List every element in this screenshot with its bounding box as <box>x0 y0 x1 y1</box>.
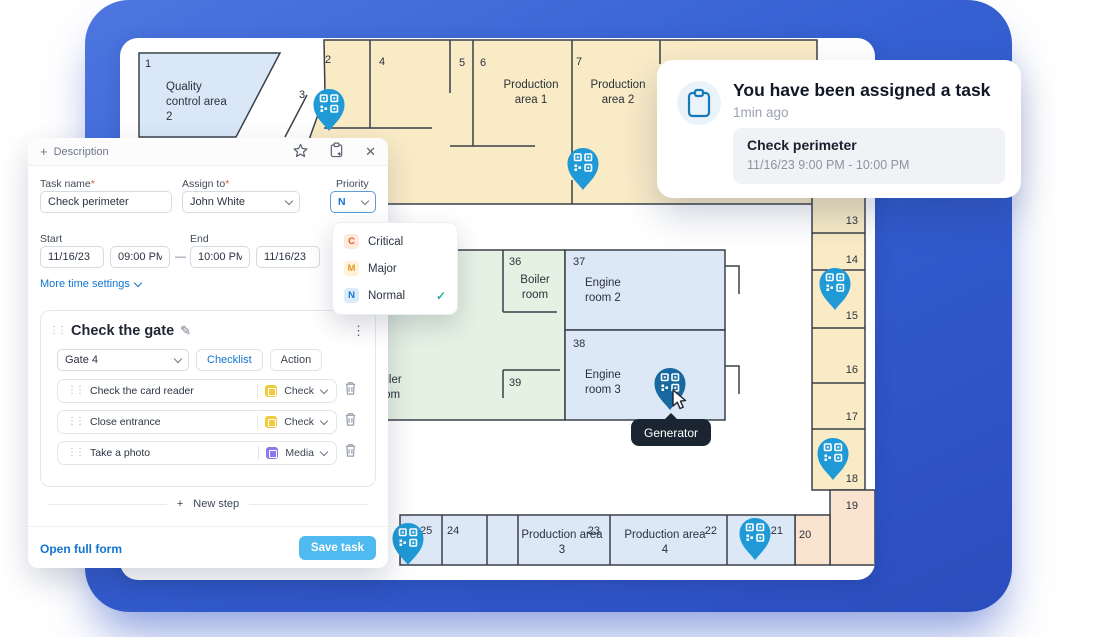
map-pin-qr-production-2[interactable] <box>565 146 601 192</box>
checklist-item-row: ⋮⋮ Take a photo Media <box>57 441 367 465</box>
start-label: Start <box>40 233 62 245</box>
room-number-37: 37 <box>573 256 585 268</box>
plus-icon: + <box>177 498 183 510</box>
map-tooltip-generator: Generator <box>631 419 711 446</box>
task-notification-toast[interactable]: You have been assigned a task 1min ago C… <box>657 60 1021 198</box>
clipboard-template-icon[interactable] <box>329 142 344 161</box>
map-pin-qr-room-15[interactable] <box>817 266 853 312</box>
checklist-item[interactable]: ⋮⋮ Check the card reader Check <box>57 379 337 403</box>
room-number-5: 5 <box>459 57 465 69</box>
more-time-settings-link[interactable]: More time settings <box>40 278 141 290</box>
drag-handle-icon[interactable]: ⋮⋮ <box>49 326 65 336</box>
form-header: + Description ✕ <box>28 138 388 166</box>
notification-task-name: Check perimeter <box>747 137 991 153</box>
step-title: Check the gate <box>71 323 174 339</box>
room-number-4: 4 <box>379 56 385 68</box>
edit-pencil-icon[interactable]: ✎ <box>180 323 191 339</box>
room-number-38: 38 <box>573 338 585 350</box>
assign-to-label: Assign to* <box>182 178 229 190</box>
chevron-down-icon <box>361 196 369 204</box>
room-number-13: 13 <box>832 215 858 227</box>
media-type-icon <box>266 447 278 459</box>
room-number-1: 1 <box>145 58 151 70</box>
room-number-16: 16 <box>832 364 858 376</box>
task-form-panel: + Description ✕ Task name* Assign to* Jo… <box>28 138 388 568</box>
start-time-input[interactable] <box>110 246 170 268</box>
checklist-item[interactable]: ⋮⋮ Take a photo Media <box>57 441 337 465</box>
chevron-down-icon[interactable] <box>320 416 328 424</box>
map-pin-qr-room-25[interactable] <box>390 521 426 567</box>
room-name-boiler: Boiler room <box>509 273 561 303</box>
drag-handle-icon[interactable]: ⋮⋮ <box>67 386 83 396</box>
priority-dropdown-menu: C Critical M Major N Normal ✓ <box>332 222 458 315</box>
map-pin-qr-room-21[interactable] <box>737 516 773 562</box>
assign-to-select[interactable]: John White <box>182 191 300 213</box>
chevron-down-icon[interactable] <box>320 447 328 455</box>
save-task-button[interactable]: Save task <box>299 536 376 560</box>
chevron-down-icon <box>134 278 142 286</box>
drag-handle-icon[interactable]: ⋮⋮ <box>67 417 83 427</box>
close-icon[interactable]: ✕ <box>365 144 376 160</box>
priority-label: Priority <box>336 178 369 190</box>
location-select[interactable]: Gate 4 <box>57 349 189 371</box>
notification-time-ago: 1min ago <box>733 105 789 120</box>
new-step-button[interactable]: +New step <box>48 498 368 510</box>
chevron-down-icon <box>174 354 182 362</box>
page: { "theme": { "frame_blue": "#3560d2", "p… <box>0 0 1098 637</box>
room-name-engine-2: Engine room 2 <box>585 276 640 306</box>
trash-icon[interactable] <box>344 381 357 401</box>
room-number-6: 6 <box>480 57 486 69</box>
trash-icon[interactable] <box>344 412 357 432</box>
end-date-input[interactable] <box>256 246 320 268</box>
end-time-input[interactable] <box>190 246 250 268</box>
description-label[interactable]: Description <box>54 146 109 158</box>
room-number-24: 24 <box>447 525 459 537</box>
notification-title: You have been assigned a task <box>733 80 990 101</box>
chevron-down-icon <box>285 196 293 204</box>
notification-task-time: 11/16/23 9:00 PM - 10:00 PM <box>747 158 991 172</box>
kebab-menu-icon[interactable]: ⋮ <box>352 323 365 339</box>
plus-icon[interactable]: + <box>40 144 48 159</box>
action-button[interactable]: Action <box>270 349 323 371</box>
drag-handle-icon[interactable]: ⋮⋮ <box>67 448 83 458</box>
priority-badge-normal: N <box>344 288 359 303</box>
trash-icon[interactable] <box>344 443 357 463</box>
start-date-input[interactable] <box>40 246 104 268</box>
task-name-label: Task name* <box>40 178 95 190</box>
end-label: End <box>190 233 209 245</box>
checklist-item[interactable]: ⋮⋮ Close entrance Check <box>57 410 337 434</box>
priority-select[interactable]: N <box>330 191 376 213</box>
map-pin-qr-room-3[interactable] <box>311 87 347 133</box>
room-name-production-2: Production area 2 <box>578 78 658 108</box>
priority-badge-critical: C <box>344 234 359 249</box>
room-number-17: 17 <box>832 411 858 423</box>
priority-badge-major: M <box>344 261 359 276</box>
room-number-3: 3 <box>299 89 305 101</box>
room-number-7: 7 <box>576 56 582 68</box>
room-name-engine-3: Engine room 3 <box>585 368 640 398</box>
priority-option-critical[interactable]: C Critical <box>333 228 457 255</box>
checklist-item-row: ⋮⋮ Check the card reader Check <box>57 379 367 403</box>
checklist-button[interactable]: Checklist <box>196 349 263 371</box>
room-number-36: 36 <box>509 256 521 268</box>
check-type-icon <box>265 416 277 428</box>
room-number-14: 14 <box>832 254 858 266</box>
mouse-cursor-icon <box>671 389 693 416</box>
map-pin-qr-room-18[interactable] <box>815 436 851 482</box>
chevron-down-icon[interactable] <box>320 385 328 393</box>
room-name-quality-control: Quality control area 2 <box>166 80 228 125</box>
room-number-19: 19 <box>832 500 858 512</box>
room-name-production-1: Production area 1 <box>491 78 571 108</box>
star-icon[interactable] <box>293 143 308 161</box>
room-number-39: 39 <box>509 377 521 389</box>
open-full-form-link[interactable]: Open full form <box>40 542 122 556</box>
room-name-production-3: Production area 3 <box>520 528 604 558</box>
room-number-20: 20 <box>799 529 811 541</box>
task-name-input[interactable] <box>40 191 172 213</box>
check-type-icon <box>265 385 277 397</box>
priority-option-major[interactable]: M Major <box>333 255 457 282</box>
clipboard-icon <box>677 81 721 125</box>
time-range-separator: — <box>175 251 186 263</box>
priority-option-normal[interactable]: N Normal ✓ <box>333 282 457 309</box>
room-number-2: 2 <box>325 54 331 66</box>
checklist-item-row: ⋮⋮ Close entrance Check <box>57 410 367 434</box>
notification-task-card[interactable]: Check perimeter 11/16/23 9:00 PM - 10:00… <box>733 128 1005 184</box>
selected-check-icon: ✓ <box>436 289 446 303</box>
room-name-production-4: Production area 4 <box>623 528 707 558</box>
step-card: ⋮⋮ Check the gate ✎ ⋮ Gate 4 Checklist A… <box>40 310 376 487</box>
